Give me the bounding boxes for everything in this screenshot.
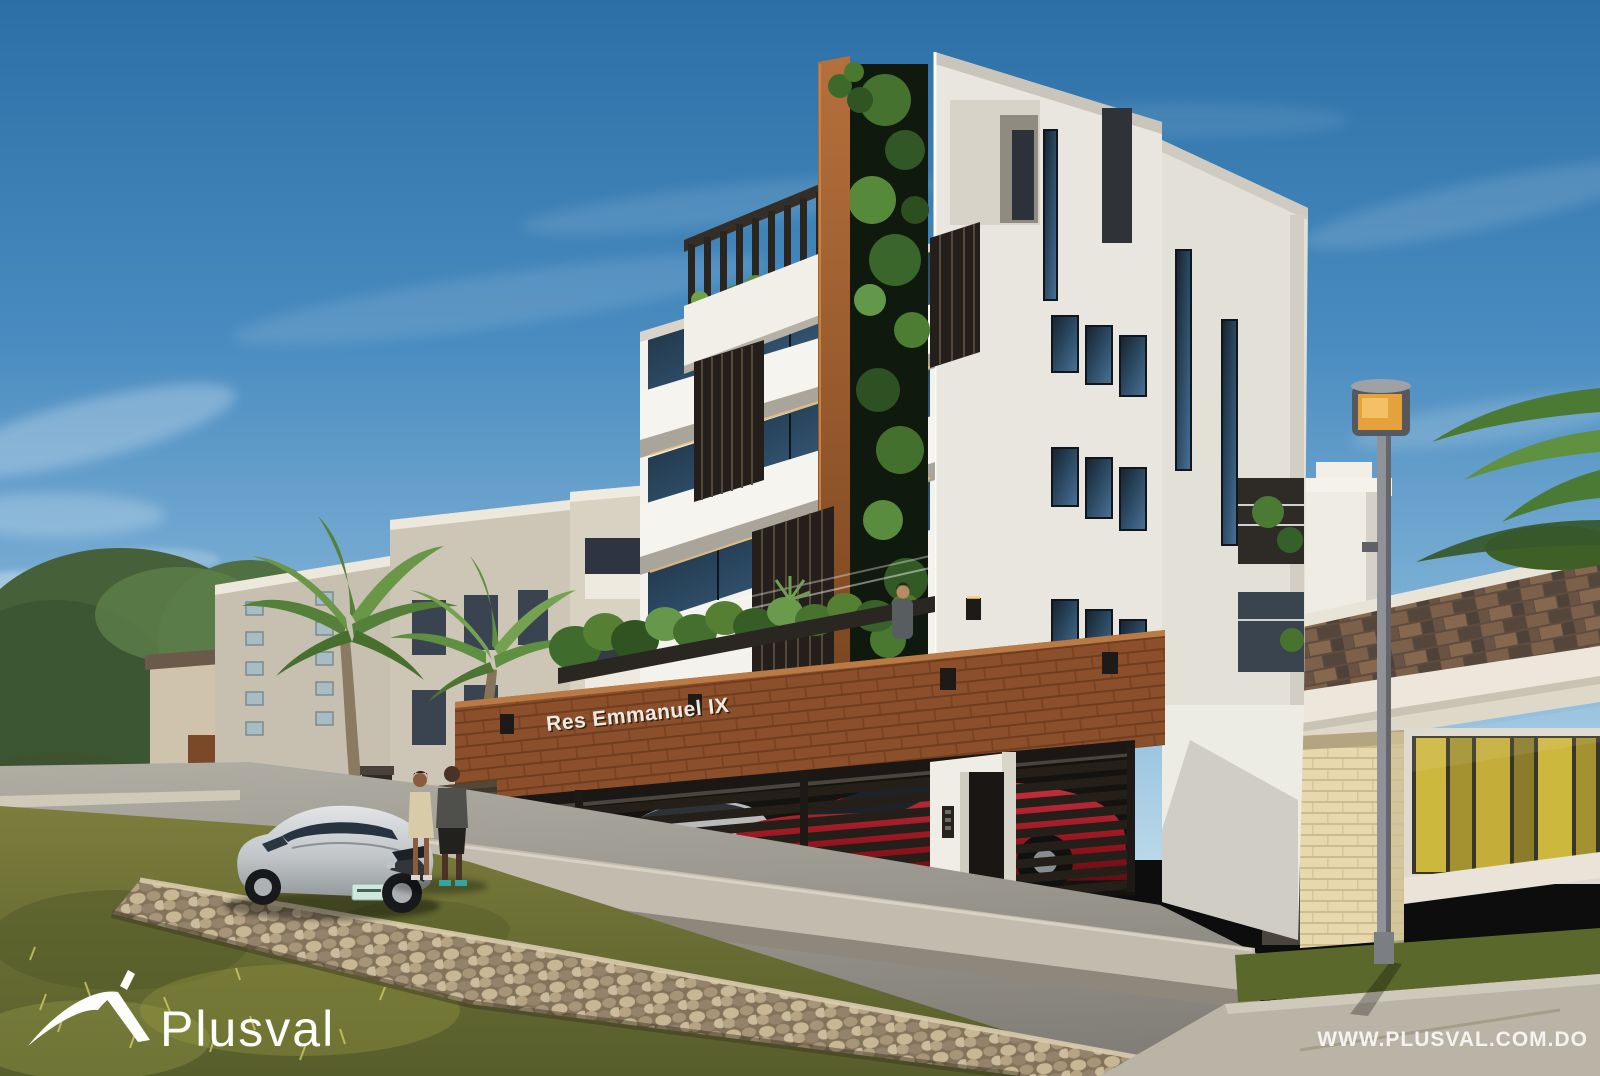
plusval-logo-text: Plusval	[160, 1001, 335, 1057]
slat-screen-a	[694, 340, 764, 502]
wall-sconces	[966, 596, 981, 620]
architectural-render: Res Emmanuel IX Res Emmanuel IX	[0, 0, 1600, 1076]
lamp-head	[1351, 379, 1411, 436]
website-url-text: WWW.PLUSVAL.COM.DO	[1317, 1028, 1588, 1051]
render-scene: Res Emmanuel IX Res Emmanuel IX	[0, 0, 1600, 1076]
slat-screen-c	[930, 222, 980, 368]
house-window	[1402, 706, 1600, 904]
